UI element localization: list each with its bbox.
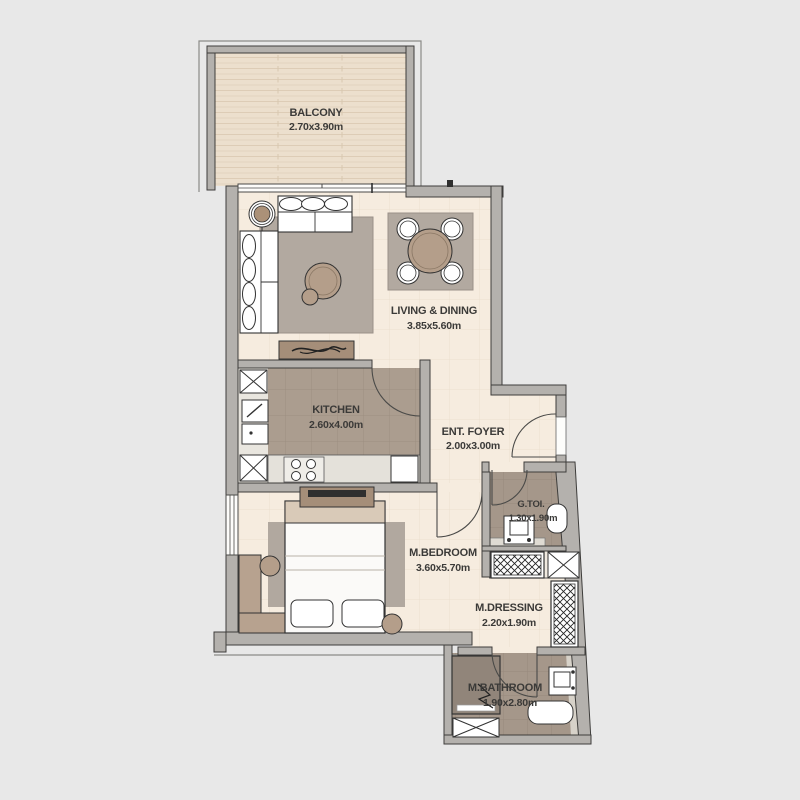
pillow	[291, 600, 333, 627]
floor-plan: BALCONY 2.70x3.90m LIVING & DINING 3.85x…	[0, 0, 800, 800]
room-dims: 1.30x1.90m	[509, 513, 558, 524]
room-name: M.BATHROOM	[468, 682, 542, 694]
room-dims: 1.90x2.80m	[483, 697, 537, 709]
wardrobe-icon	[491, 552, 544, 578]
bed-icon	[285, 501, 385, 633]
room-name: M.DRESSING	[475, 602, 543, 614]
duct-icon	[548, 552, 579, 578]
wardrobe-icon	[551, 581, 578, 647]
duct-icon	[453, 718, 499, 737]
dining-set	[388, 213, 473, 290]
entrance-opening	[556, 417, 566, 455]
room-name: ENT. FOYER	[442, 426, 505, 438]
room-name: KITCHEN	[312, 404, 360, 416]
room-dims: 2.70x3.90m	[289, 121, 343, 133]
window-icon	[226, 495, 238, 555]
tv-console-icon	[279, 341, 354, 359]
stove-icon	[284, 457, 324, 482]
room-name: LIVING & DINING	[391, 305, 477, 317]
floor-plan-canvas: BALCONY 2.70x3.90m LIVING & DINING 3.85x…	[0, 0, 800, 800]
dining-table-icon	[408, 229, 452, 273]
room-name: BALCONY	[290, 107, 344, 119]
room-dims: 2.00x3.00m	[446, 440, 500, 452]
duct-icon	[240, 455, 267, 481]
room-name: G.TOI.	[517, 499, 544, 510]
balcony-deck	[214, 53, 406, 186]
room-dims: 2.20x1.90m	[482, 617, 536, 629]
nightstand-icon	[382, 614, 402, 634]
nightstand-icon	[260, 556, 280, 576]
room-name: M.BEDROOM	[409, 547, 477, 559]
duct-icon	[240, 370, 267, 393]
tv-console-icon	[300, 487, 374, 507]
room-dims: 3.85x5.60m	[407, 320, 461, 332]
column-post	[447, 180, 453, 187]
pillow	[342, 600, 384, 627]
washbasin-icon	[549, 667, 576, 695]
room-dims: 2.60x4.00m	[309, 419, 363, 431]
fridge-icon	[391, 456, 418, 482]
gtoi-door-gap	[489, 462, 524, 472]
bedroom-door-gap	[437, 483, 482, 492]
sliding-door-icon	[238, 183, 406, 193]
room-dims: 3.60x5.70m	[416, 562, 470, 574]
kitchen-sink-icon	[242, 400, 268, 444]
